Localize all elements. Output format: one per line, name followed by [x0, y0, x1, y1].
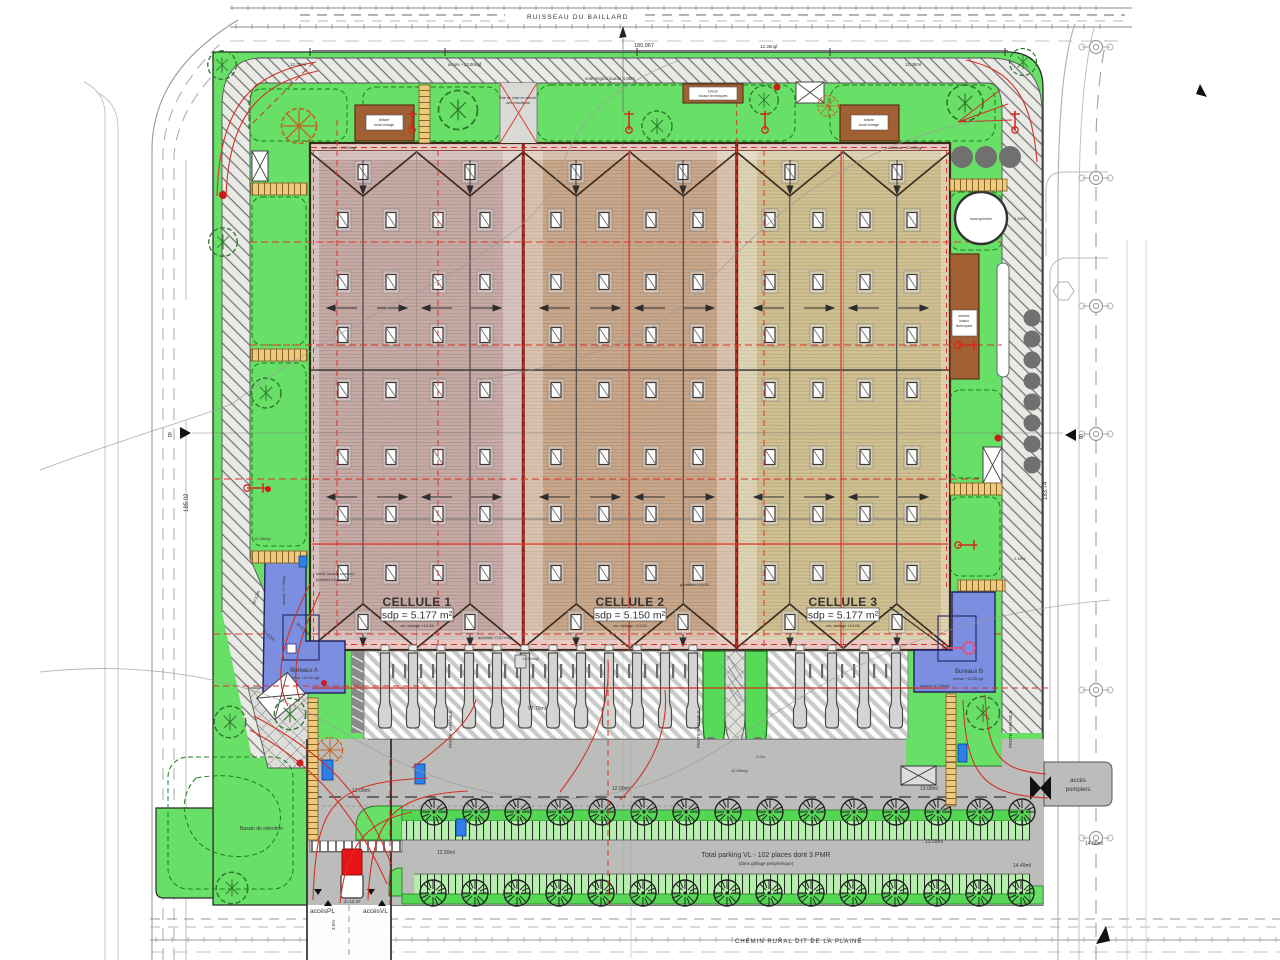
- svg-text:14.00ml: 14.00ml: [1085, 841, 1103, 847]
- svg-text:sdp = 5.177 m²: sdp = 5.177 m²: [382, 610, 453, 622]
- svg-text:accès +13.00ngf: accès +13.00ngf: [448, 62, 482, 67]
- svg-text:voie engins lourds 4.00m: voie engins lourds 4.00m: [585, 76, 635, 81]
- svg-text:CHEMIN RURAL DIT DE LA PLAINE: CHEMIN RURAL DIT DE LA PLAINE: [735, 939, 862, 945]
- svg-text:acodrain +13.00ngf: acodrain +13.00ngf: [478, 635, 513, 640]
- svg-text:PENTE VARIABLE: PENTE VARIABLE: [1008, 710, 1013, 748]
- svg-text:niv. dallage +13.05: niv. dallage +13.05: [400, 623, 434, 628]
- svg-text:gouttiere +13.00: gouttiere +13.00: [680, 582, 710, 587]
- svg-text:12.50mgl: 12.50mgl: [522, 656, 539, 661]
- svg-text:2.0m: 2.0m: [756, 754, 766, 759]
- svg-text:toiture: toiture: [708, 90, 718, 94]
- svg-text:13.00ml: 13.00ml: [920, 786, 938, 792]
- svg-text:12.35ngf: 12.35ngf: [760, 44, 778, 49]
- svg-text:local charge: local charge: [374, 123, 394, 127]
- svg-text:niv. dallage +13.05: niv. dallage +13.05: [826, 623, 860, 628]
- svg-text:techniques: techniques: [956, 324, 973, 328]
- svg-text:B: B: [168, 433, 172, 439]
- svg-text:12.35ml: 12.35ml: [290, 62, 306, 67]
- svg-text:acodrain +13.00ngf: acodrain +13.00ngf: [322, 145, 357, 150]
- svg-text:niveau +13.05 ngf: niveau +13.05 ngf: [953, 677, 984, 681]
- svg-text:Bureaux A: Bureaux A: [290, 668, 318, 674]
- svg-text:annexe: annexe: [958, 314, 969, 318]
- svg-text:B: B: [1079, 435, 1083, 441]
- svg-text:(dans grillage périphérique): (dans grillage périphérique): [739, 861, 794, 866]
- svg-text:sdp = 5.177 m²: sdp = 5.177 m²: [808, 610, 879, 622]
- svg-text:Z=12.37: Z=12.37: [344, 899, 361, 904]
- svg-text:pompiers: pompiers: [1066, 787, 1091, 793]
- svg-text:toiture: toiture: [864, 118, 875, 122]
- svg-text:auvent +17.50ngf: auvent +17.50ngf: [282, 575, 286, 605]
- svg-text:13.09ml: 13.09ml: [925, 839, 943, 845]
- svg-text:RUISSEAU DU BAILLARD: RUISSEAU DU BAILLARD: [527, 14, 629, 21]
- svg-text:97.70ml: 97.70ml: [528, 706, 546, 712]
- svg-text:PENTE VARIABLE: PENTE VARIABLE: [448, 710, 453, 748]
- svg-text:12.35ml: 12.35ml: [905, 62, 921, 67]
- svg-text:CELLULE 2: CELLULE 2: [596, 595, 665, 609]
- svg-text:accès: accès: [1070, 778, 1086, 784]
- svg-text:accèsVL: accèsVL: [363, 908, 388, 915]
- svg-text:12.50ml: 12.50ml: [437, 850, 455, 856]
- svg-text:des chauffeurs: des chauffeurs: [506, 101, 530, 105]
- svg-text:niv. dallage +13.05: niv. dallage +13.05: [613, 623, 647, 628]
- svg-text:local charge: local charge: [859, 123, 879, 127]
- svg-text:Bassin de rétention: Bassin de rétention: [240, 826, 283, 832]
- svg-text:2.18%: 2.18%: [1014, 216, 1026, 221]
- svg-text:Aire de mise en attente: Aire de mise en attente: [500, 96, 537, 100]
- svg-text:185.02: 185.02: [184, 493, 190, 512]
- svg-text:PENTE VARIABLE: PENTE VARIABLE: [696, 710, 701, 748]
- svg-text:sortie locaux sous-sol: sortie locaux sous-sol: [316, 571, 355, 576]
- svg-text:12.50mgl: 12.50mgl: [731, 768, 748, 773]
- svg-text:CELLULE 1: CELLULE 1: [383, 595, 452, 609]
- svg-text:CELLULE 3: CELLULE 3: [809, 595, 878, 609]
- svg-text:toiture: toiture: [379, 118, 390, 122]
- svg-text:poteaux incendie: poteaux incendie: [316, 577, 347, 582]
- svg-text:183.74: 183.74: [1043, 481, 1049, 500]
- svg-text:locaux: locaux: [959, 319, 969, 323]
- svg-text:local sprinkler: local sprinkler: [970, 217, 993, 221]
- svg-text:sdp = 5.150 m²: sdp = 5.150 m²: [595, 610, 666, 622]
- svg-text:2.18%: 2.18%: [1014, 556, 1026, 561]
- svg-text:14.49ml: 14.49ml: [1013, 863, 1031, 869]
- svg-text:Total parking VL - 102 places: Total parking VL - 102 places dont 3 PMR: [702, 852, 831, 859]
- svg-text:locaux techniques: locaux techniques: [699, 94, 728, 98]
- svg-text:Bureaux B: Bureaux B: [955, 669, 983, 675]
- svg-text:3.5%: 3.5%: [331, 920, 336, 930]
- svg-text:accèsPL: accèsPL: [310, 908, 335, 915]
- svg-text:12.35mgl: 12.35mgl: [254, 536, 271, 541]
